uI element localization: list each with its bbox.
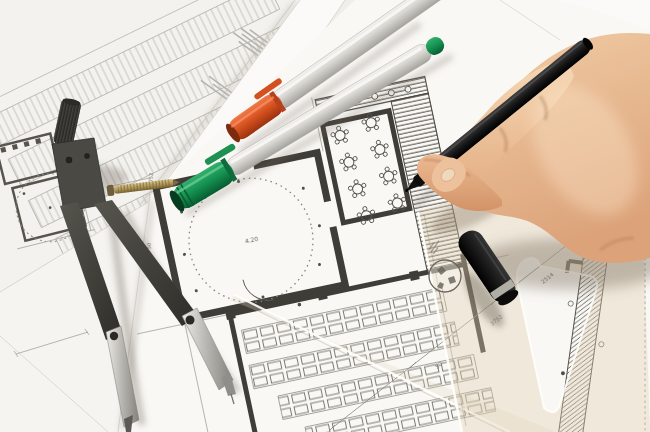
set-square-logo xyxy=(429,260,461,292)
photo-canvas: 4.20 3752 50 50 3752 2514 xyxy=(0,0,650,432)
blueprint-scene: 4.20 3752 50 50 3752 2514 xyxy=(0,0,650,432)
